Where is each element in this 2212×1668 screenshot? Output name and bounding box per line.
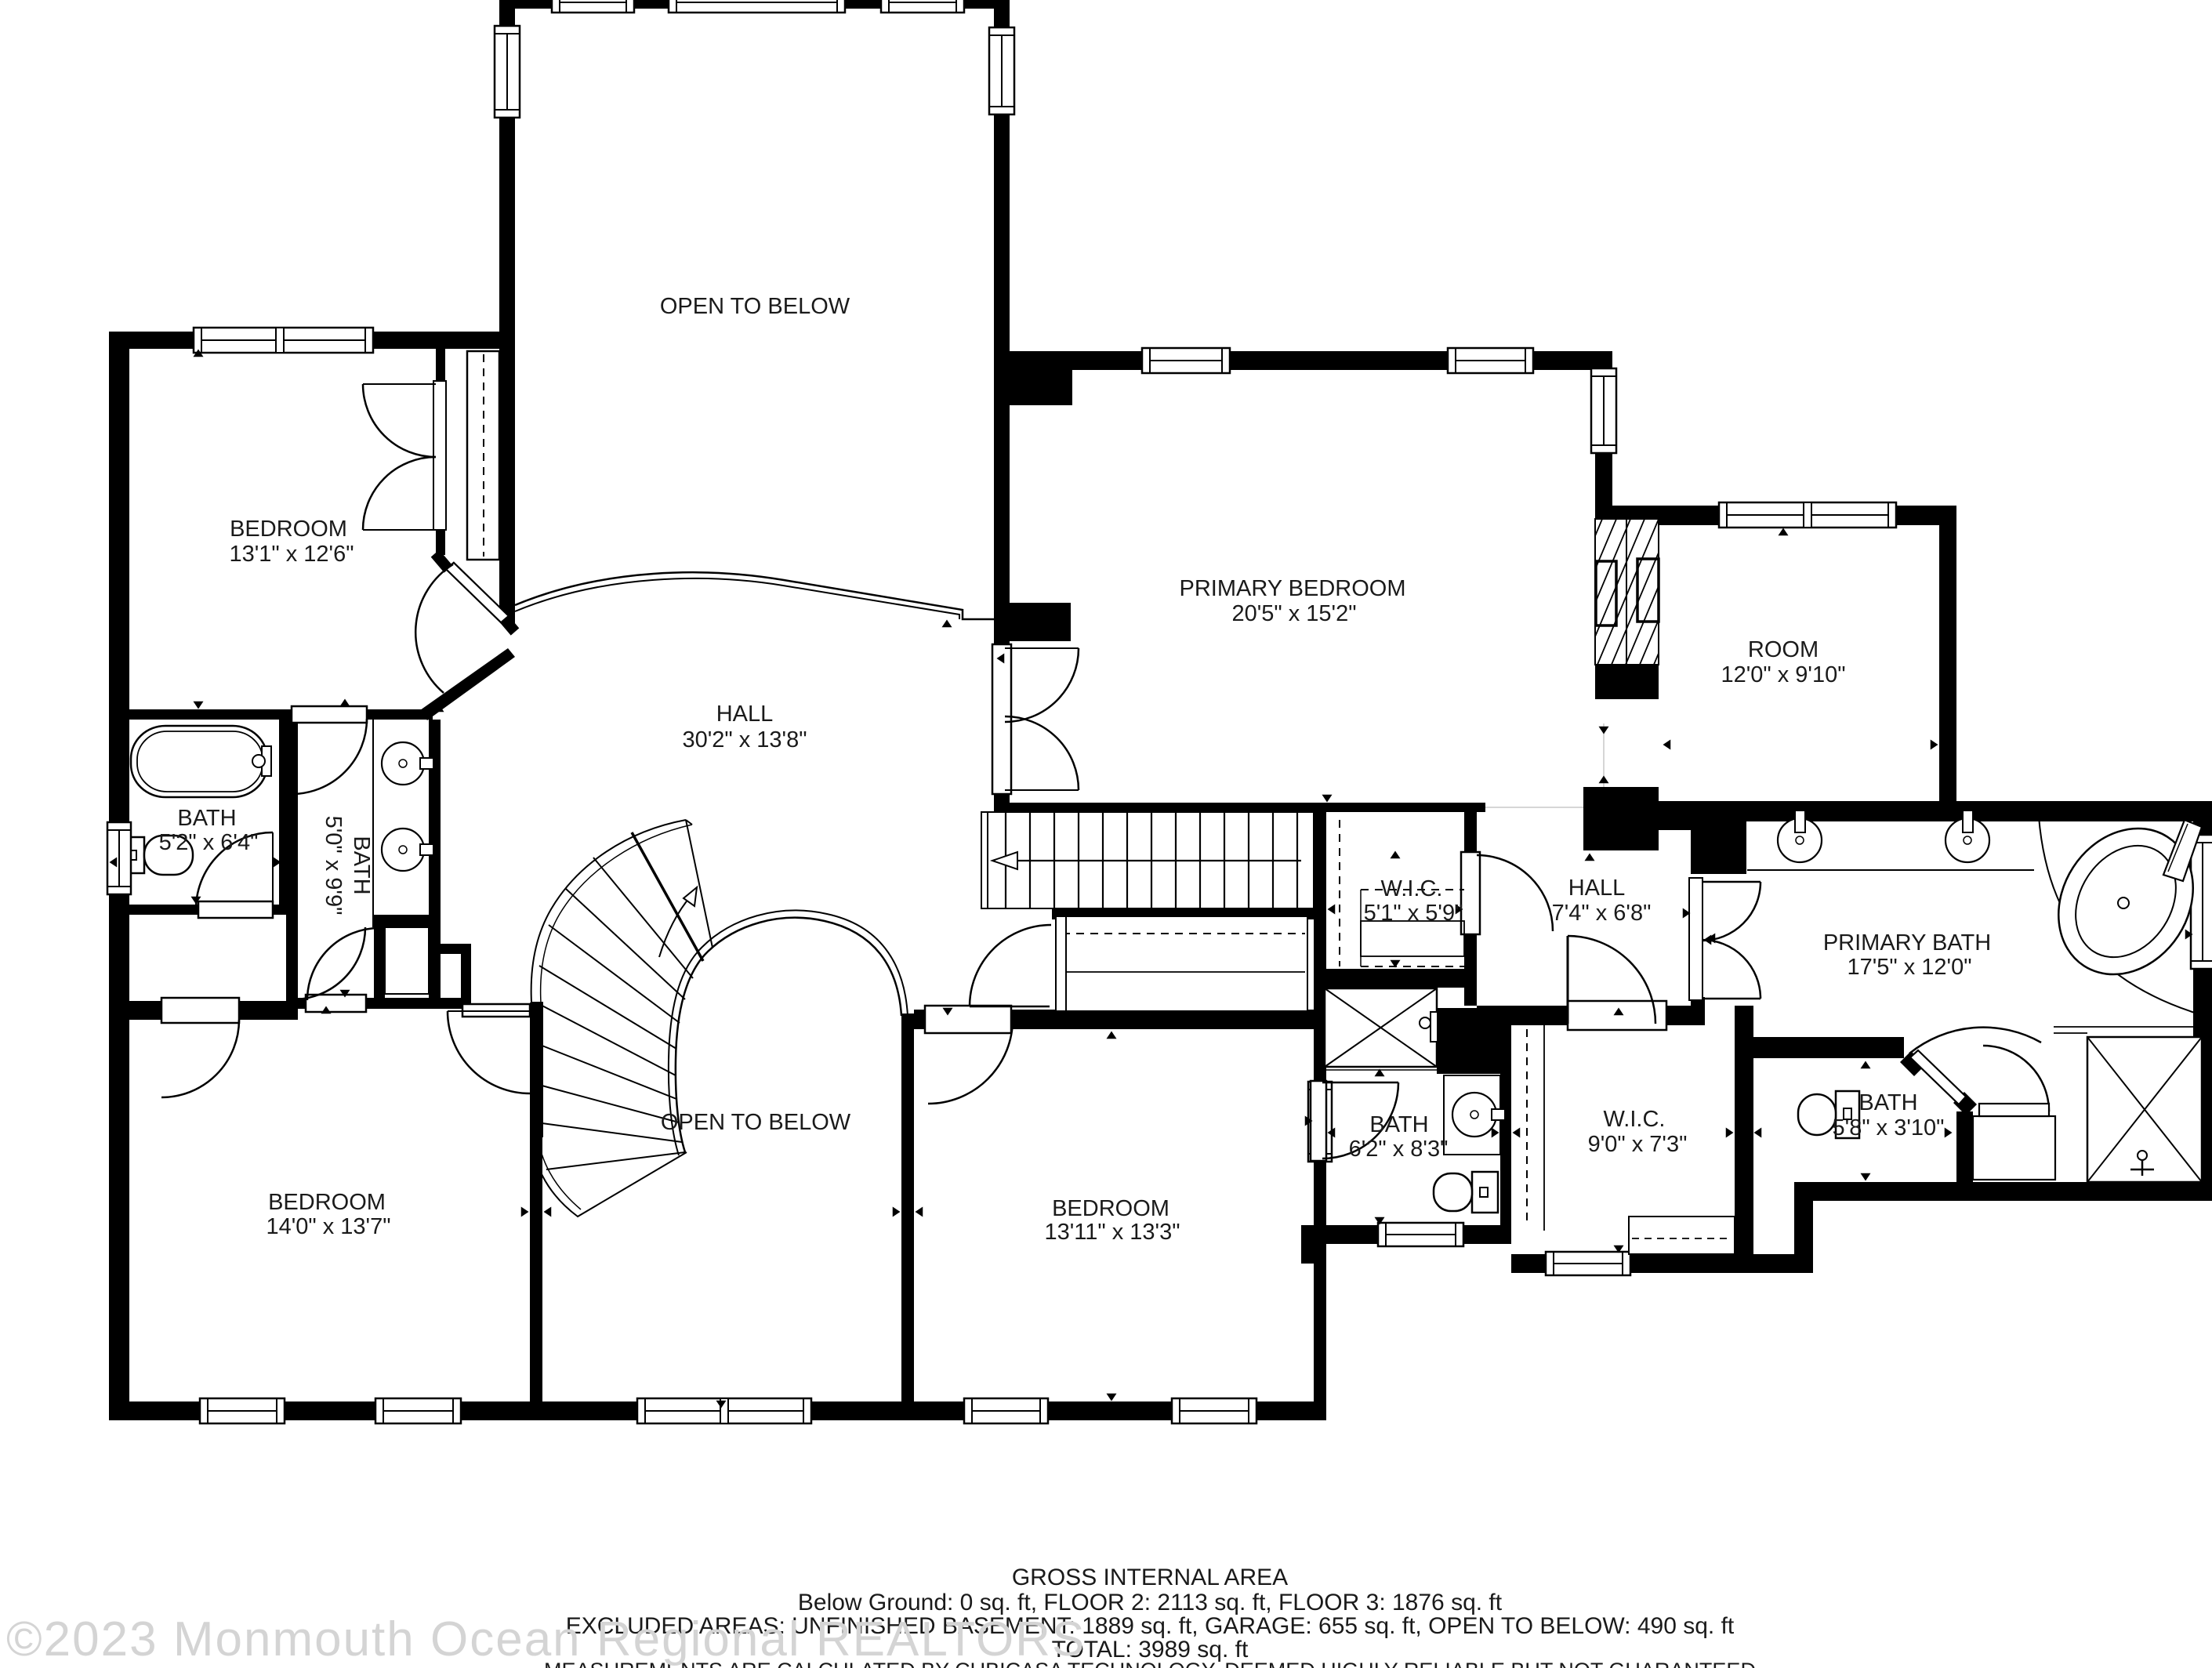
svg-text:5'2" x 6'4": 5'2" x 6'4" — [159, 830, 259, 855]
svg-text:GROSS INTERNAL AREA: GROSS INTERNAL AREA — [1012, 1565, 1288, 1590]
svg-text:13'1" x 12'6": 13'1" x 12'6" — [229, 542, 354, 567]
svg-text:HALL: HALL — [716, 702, 774, 727]
svg-text:HALL: HALL — [1568, 876, 1626, 901]
svg-text:W.I.C.: W.I.C. — [1381, 876, 1443, 901]
svg-text:BATH: BATH — [1369, 1112, 1428, 1137]
svg-text:13'11" x 13'3": 13'11" x 13'3" — [1044, 1220, 1180, 1245]
svg-text:17'5" x 12'0": 17'5" x 12'0" — [1847, 955, 1971, 980]
svg-text:30'2" x 13'8": 30'2" x 13'8" — [682, 727, 807, 752]
svg-text:12'0" x 9'10": 12'0" x 9'10" — [1721, 662, 1845, 687]
svg-text:5'0" x 9'9": 5'0" x 9'9" — [321, 816, 346, 916]
svg-text:OPEN TO BELOW: OPEN TO BELOW — [660, 294, 850, 319]
svg-text:5'8" x 3'10": 5'8" x 3'10" — [1833, 1115, 1945, 1140]
svg-text:W.I.C.: W.I.C. — [1604, 1107, 1666, 1132]
svg-text:PRIMARY BEDROOM: PRIMARY BEDROOM — [1180, 576, 1406, 601]
svg-text:7'4" x 6'8": 7'4" x 6'8" — [1552, 901, 1652, 926]
svg-text:OPEN TO BELOW: OPEN TO BELOW — [661, 1110, 851, 1135]
svg-text:BEDROOM: BEDROOM — [1052, 1196, 1169, 1221]
svg-text:BATH: BATH — [1858, 1090, 1917, 1115]
svg-text:©2023 Monmouth Ocean Regional: ©2023 Monmouth Ocean Regional REALTORS — [6, 1612, 1086, 1666]
svg-text:14'0" x 13'7": 14'0" x 13'7" — [266, 1214, 390, 1239]
svg-text:BATH: BATH — [349, 836, 374, 894]
svg-text:9'0" x 7'3": 9'0" x 7'3" — [1588, 1132, 1688, 1157]
svg-text:BEDROOM: BEDROOM — [268, 1190, 386, 1215]
svg-text:BEDROOM: BEDROOM — [230, 517, 347, 542]
svg-text:6'2" x 8'3": 6'2" x 8'3" — [1349, 1137, 1449, 1162]
svg-text:PRIMARY BATH: PRIMARY BATH — [1823, 930, 1991, 955]
svg-text:ROOM: ROOM — [1748, 637, 1819, 662]
svg-text:BATH: BATH — [177, 806, 236, 831]
svg-text:5'1" x 5'9": 5'1" x 5'9" — [1364, 901, 1463, 926]
svg-text:20'5" x 15'2": 20'5" x 15'2" — [1231, 601, 1356, 626]
